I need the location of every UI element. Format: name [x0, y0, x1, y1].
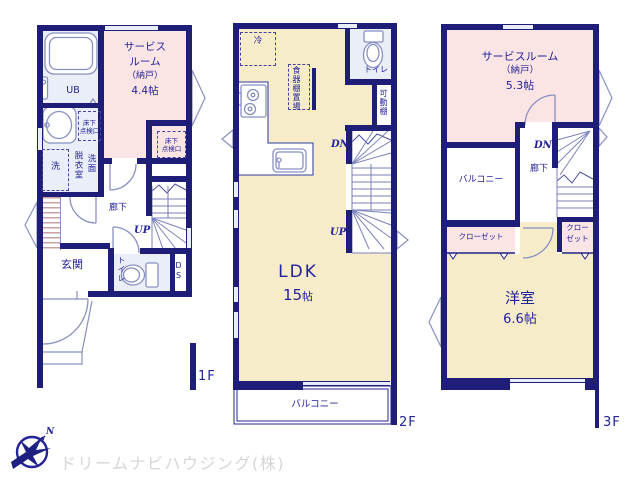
- room-label-service-3f: サービスルーム: [447, 51, 593, 63]
- stairs-2f: [352, 131, 391, 253]
- window: [303, 381, 390, 386]
- room-label-dressing: 脱衣室: [72, 151, 84, 180]
- room-label-western: 洋室: [447, 290, 593, 307]
- window: [233, 312, 239, 338]
- wall-segment: [60, 243, 110, 249]
- underfloor-access-box: 床下点検口: [78, 111, 101, 141]
- window: [338, 23, 357, 29]
- room-label-service-1f: ルーム: [104, 57, 186, 69]
- wall-segment: [441, 378, 510, 390]
- wall-segment: [140, 248, 192, 254]
- stairs-3f: [557, 131, 593, 217]
- compass-logo: [11, 436, 51, 469]
- window: [37, 128, 43, 150]
- compass-north-label: N: [46, 428, 54, 438]
- label-cupboard: 食器棚置場: [291, 66, 302, 111]
- stairs-up-label-2f: UP: [330, 227, 346, 238]
- stairs-up-label-1f: UP: [134, 225, 150, 236]
- company-name: ドリームナビハウジング(株): [60, 450, 285, 474]
- wall-segment: [345, 29, 350, 79]
- window: [233, 210, 239, 228]
- wall-segment: [104, 158, 112, 164]
- label-balcony-2f: バルコニー: [280, 400, 350, 410]
- label-closet-right: クロー: [562, 224, 593, 232]
- window: [233, 287, 239, 302]
- wall-segment: [515, 148, 520, 222]
- toilet-icon-2f: [364, 31, 384, 68]
- wall-segment: [552, 122, 558, 168]
- entrance-porch: [40, 291, 92, 364]
- vanity-sink-icon: [43, 107, 76, 143]
- door-arcs-3f: [523, 95, 555, 258]
- door-arcs-1f: [43, 164, 139, 344]
- room-size-western: 6.6帖: [447, 313, 593, 327]
- floor-label-2f: 2F: [399, 416, 417, 430]
- label-balcony-3f: バルコニー: [447, 176, 515, 186]
- wall-segment: [345, 79, 397, 85]
- stairs-dn-label-3f: DN: [534, 140, 552, 151]
- room-label-hall-3f: 廊下: [525, 165, 553, 175]
- room-label-toilet-2f: トイレ: [362, 66, 390, 75]
- wall-segment: [186, 25, 192, 297]
- wall-segment: [137, 158, 186, 164]
- cupboard-wall: [312, 68, 316, 110]
- wall-segment: [233, 23, 397, 29]
- wall-segment: [37, 103, 98, 108]
- room-label-ub: UB: [58, 86, 88, 96]
- window: [233, 182, 239, 197]
- window: [510, 378, 585, 383]
- label-washer: 洗: [42, 163, 69, 173]
- wall-segment: [37, 297, 43, 388]
- room-label-ds: DS: [174, 261, 183, 281]
- label-fridge: 冷: [240, 37, 276, 46]
- wall-segment: [441, 220, 520, 227]
- label-movable-shelf: 可動棚: [378, 89, 389, 116]
- floor-label-3f: 3F: [603, 416, 621, 430]
- room-size-service-3f: 5.3帖: [447, 80, 593, 92]
- wall-segment: [441, 142, 520, 148]
- room-label-service-3f: （納戸）: [447, 66, 593, 76]
- room-size-service-1f: 4.4帖: [104, 86, 186, 98]
- wall-segment: [146, 120, 152, 216]
- wall-segment: [585, 378, 593, 390]
- wall-segment: [593, 24, 599, 390]
- room-label-hall-1f: 廊下: [103, 204, 133, 214]
- floor-mark-1f: [190, 343, 196, 390]
- label-closet-left: クローゼット: [447, 233, 515, 241]
- wall-segment: [146, 176, 192, 182]
- window: [186, 228, 192, 248]
- stairs-1f: [152, 184, 186, 249]
- wall-segment: [372, 85, 377, 125]
- wall-segment: [108, 248, 114, 297]
- wall-segment: [146, 120, 186, 126]
- stairs-dn-label-2f: DN: [331, 139, 349, 150]
- room-label-ldk: LDK: [263, 263, 333, 282]
- wall-segment: [37, 192, 104, 197]
- floorplan-canvas: 床下点検口 床下点検口 サービス ルーム （納戸） 4.4帖 UB 洗 脱衣室 …: [0, 0, 640, 480]
- label-closet-right: ゼット: [562, 235, 593, 243]
- wall-segment: [555, 122, 593, 128]
- wall-segment: [233, 381, 303, 390]
- room-size-ldk: 15帖: [263, 287, 333, 304]
- wall-segment: [88, 291, 192, 297]
- wall-segment: [557, 217, 599, 222]
- closet-door-marks-3f: [449, 253, 589, 259]
- wall-segment: [345, 125, 397, 131]
- window: [105, 25, 158, 31]
- wall-segment: [441, 24, 447, 390]
- room-label-service-1f: （納戸）: [104, 72, 186, 82]
- room-label-entrance: 玄関: [52, 259, 92, 271]
- room-label-lavatory: 洗面: [85, 154, 97, 173]
- floor-label-1f: 1F: [198, 370, 216, 384]
- room-label-toilet-1f: トイレ: [116, 256, 127, 283]
- underfloor-access-box: 床下点検口: [157, 131, 186, 158]
- window: [503, 24, 533, 30]
- room-label-service-1f: サービス: [104, 42, 186, 54]
- wall-segment: [346, 210, 352, 253]
- wall-segment: [595, 390, 599, 428]
